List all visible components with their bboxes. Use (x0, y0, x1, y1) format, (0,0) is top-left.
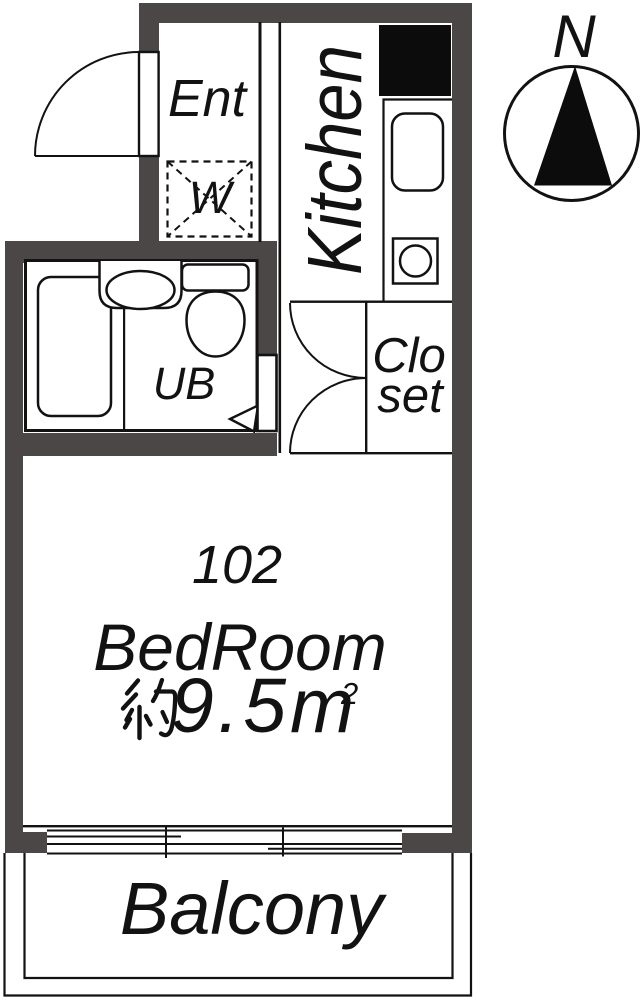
svg-text:N: N (552, 3, 596, 70)
svg-text:Ent: Ent (168, 70, 249, 128)
svg-text:Balcony: Balcony (120, 867, 387, 950)
svg-text:102: 102 (192, 535, 282, 595)
svg-text:set: set (377, 369, 445, 423)
svg-text:9.5m: 9.5m (171, 663, 358, 749)
svg-text:2: 2 (340, 676, 358, 711)
svg-text:UB: UB (153, 358, 216, 409)
svg-text:Kitchen: Kitchen (292, 45, 378, 275)
svg-text:W: W (189, 172, 236, 223)
